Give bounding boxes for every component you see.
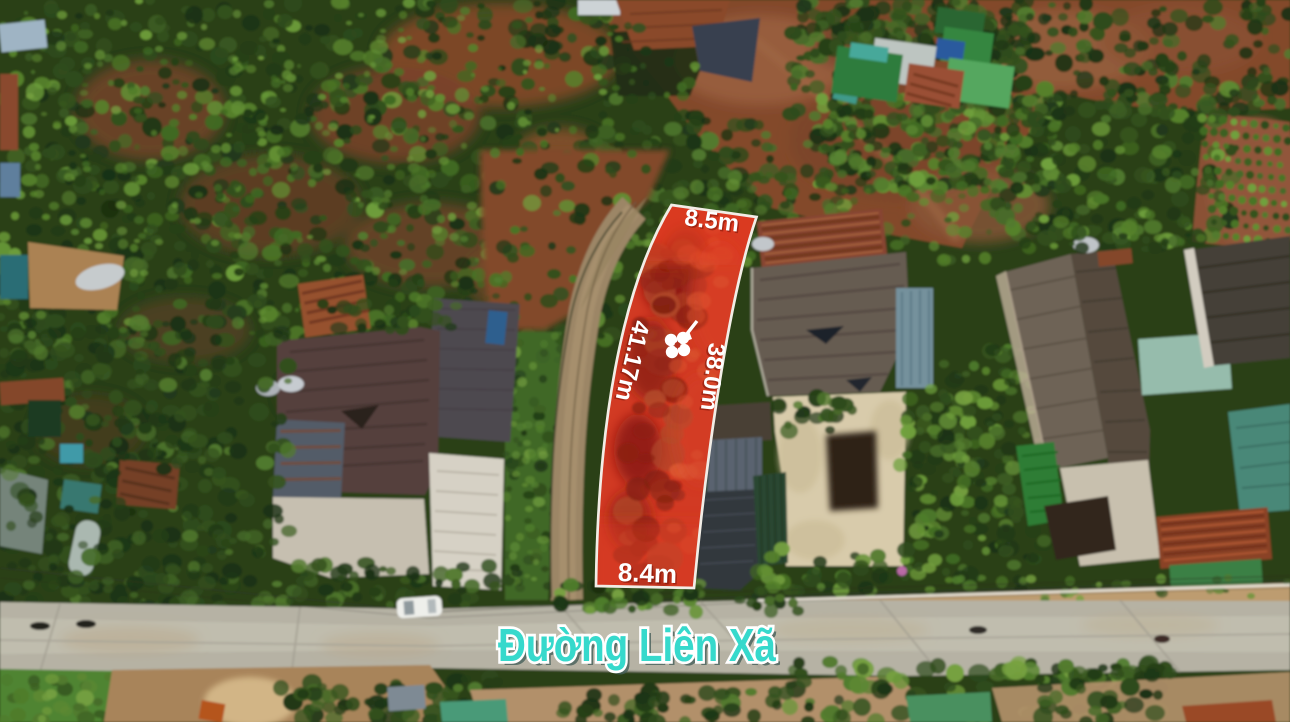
- svg-text:8.4m: 8.4m: [617, 557, 677, 589]
- svg-text:Đường Liên Xã: Đường Liên Xã: [498, 619, 776, 671]
